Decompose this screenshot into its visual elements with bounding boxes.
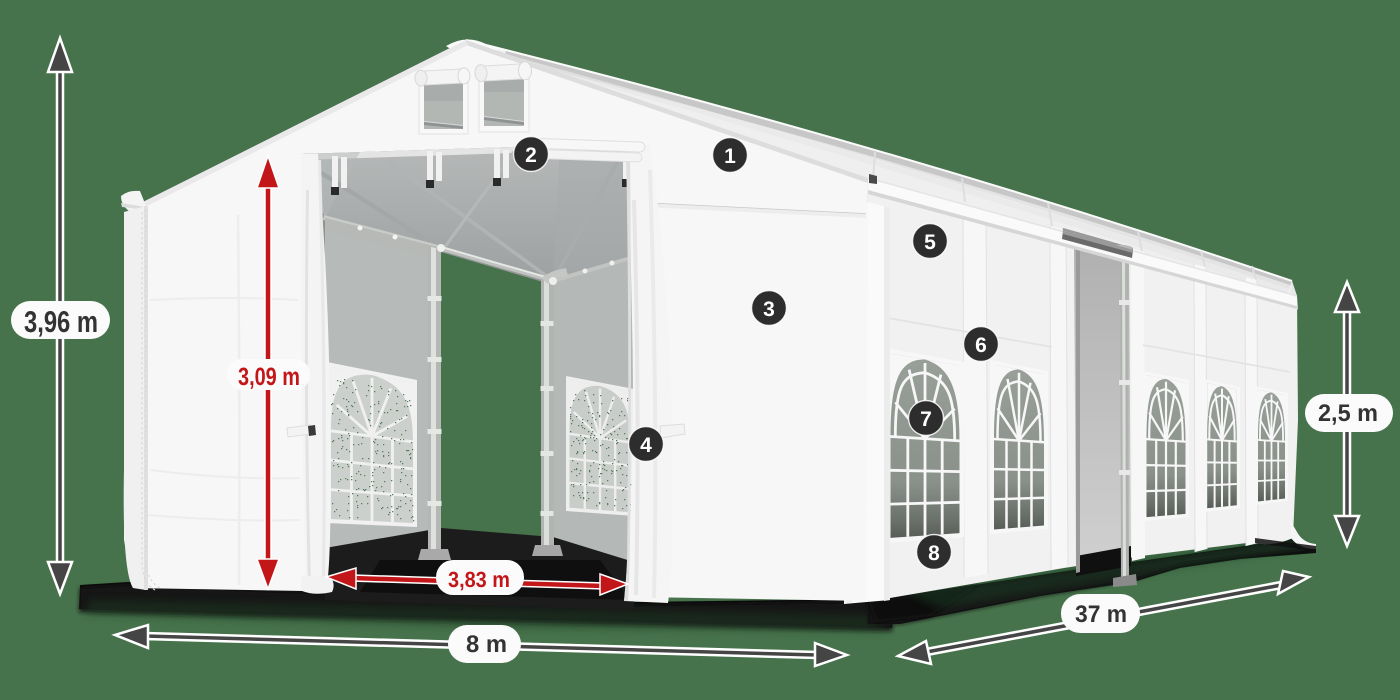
svg-text:8: 8 (928, 542, 940, 565)
svg-text:5: 5 (924, 231, 936, 254)
svg-text:4: 4 (640, 434, 652, 457)
svg-text:8 m: 8 m (466, 631, 507, 658)
svg-text:3,09 m: 3,09 m (238, 363, 300, 391)
svg-text:6: 6 (975, 334, 987, 357)
svg-text:3,83 m: 3,83 m (448, 567, 510, 592)
svg-text:37 m: 37 m (1075, 601, 1127, 628)
svg-text:3,96 m: 3,96 m (24, 306, 98, 339)
svg-text:7: 7 (920, 408, 932, 431)
svg-text:1: 1 (724, 145, 736, 168)
svg-text:2: 2 (525, 144, 537, 167)
svg-text:2,5 m: 2,5 m (1318, 400, 1378, 427)
svg-text:3: 3 (763, 298, 775, 321)
